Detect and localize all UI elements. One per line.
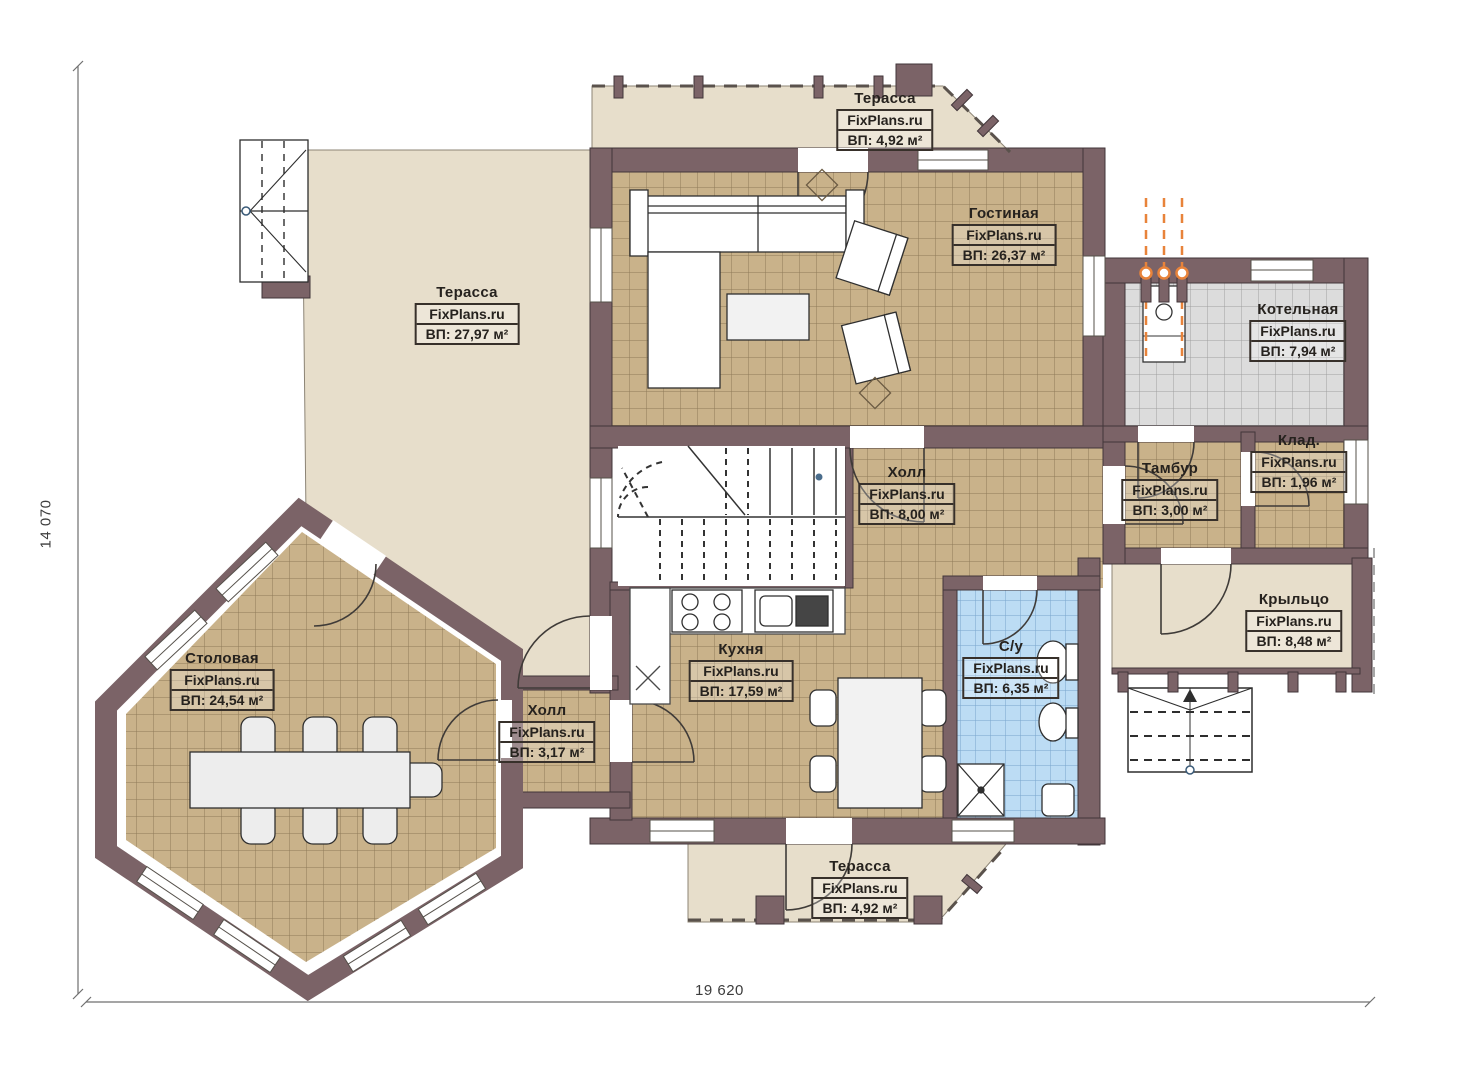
room-name: Холл [498, 702, 595, 719]
room-label-kitchen: Кухня FixPlans.ru ВП: 17,59 м² [689, 641, 794, 702]
watermark: FixPlans.ru [500, 723, 593, 743]
floor-plan-svg [0, 0, 1473, 1080]
room-label-hall-small: Холл FixPlans.ru ВП: 3,17 м² [498, 702, 595, 763]
room-area: ВП: 1,96 м² [1252, 473, 1345, 491]
room-area: ВП: 17,59 м² [691, 682, 792, 700]
room-name: С/у [962, 638, 1059, 655]
room-label-hall-main: Холл FixPlans.ru ВП: 8,00 м² [858, 464, 955, 525]
room-label-vestibule: Тамбур FixPlans.ru ВП: 3,00 м² [1121, 460, 1218, 521]
watermark: FixPlans.ru [417, 305, 518, 325]
room-label-storage: Клад. FixPlans.ru ВП: 1,96 м² [1250, 432, 1347, 493]
external-stair [240, 140, 308, 282]
watermark: FixPlans.ru [1123, 481, 1216, 501]
room-area: ВП: 4,92 м² [813, 899, 906, 917]
watermark: FixPlans.ru [172, 671, 273, 691]
room-area: ВП: 26,37 м² [954, 246, 1055, 264]
room-label-terrace-top: Терасса FixPlans.ru ВП: 4,92 м² [836, 90, 933, 151]
room-label-living: Гостиная FixPlans.ru ВП: 26,37 м² [952, 205, 1057, 266]
room-area: ВП: 3,00 м² [1123, 501, 1216, 519]
watermark: FixPlans.ru [860, 485, 953, 505]
room-name: Тамбур [1121, 460, 1218, 477]
room-info-box: FixPlans.ru ВП: 4,92 м² [811, 877, 908, 919]
room-label-terrace-bottom: Терасса FixPlans.ru ВП: 4,92 м² [811, 858, 908, 919]
room-info-box: FixPlans.ru ВП: 8,00 м² [858, 483, 955, 525]
room-area: ВП: 27,97 м² [417, 325, 518, 343]
room-info-box: FixPlans.ru ВП: 26,37 м² [952, 224, 1057, 266]
room-label-porch: Крыльцо FixPlans.ru ВП: 8,48 м² [1245, 591, 1342, 652]
room-info-box: FixPlans.ru ВП: 8,48 м² [1245, 610, 1342, 652]
porch-steps [1128, 688, 1252, 774]
watermark: FixPlans.ru [691, 662, 792, 682]
staircase [618, 446, 845, 586]
room-area: ВП: 8,48 м² [1247, 632, 1340, 650]
room-name: Гостиная [952, 205, 1057, 222]
watermark: FixPlans.ru [838, 111, 931, 131]
room-name: Столовая [170, 650, 275, 667]
room-area: ВП: 24,54 м² [172, 691, 273, 709]
boiler-unit [1141, 198, 1188, 362]
room-area: ВП: 6,35 м² [964, 679, 1057, 697]
room-area: ВП: 8,00 м² [860, 505, 953, 523]
room-area: ВП: 3,17 м² [500, 743, 593, 761]
room-name: Терасса [836, 90, 933, 107]
room-name: Холл [858, 464, 955, 481]
room-info-box: FixPlans.ru ВП: 3,00 м² [1121, 479, 1218, 521]
dimension-width: 19 620 [695, 982, 744, 999]
room-info-box: FixPlans.ru ВП: 3,17 м² [498, 721, 595, 763]
room-name: Крыльцо [1245, 591, 1342, 608]
room-name: Клад. [1250, 432, 1347, 449]
watermark: FixPlans.ru [813, 879, 906, 899]
watermark: FixPlans.ru [1251, 322, 1344, 342]
room-info-box: FixPlans.ru ВП: 6,35 м² [962, 657, 1059, 699]
room-name: Котельная [1249, 301, 1346, 318]
room-area: ВП: 7,94 м² [1251, 342, 1344, 360]
room-info-box: FixPlans.ru ВП: 1,96 м² [1250, 451, 1347, 493]
room-name: Кухня [689, 641, 794, 658]
room-label-terrace-left: Терасса FixPlans.ru ВП: 27,97 м² [415, 284, 520, 345]
room-info-box: FixPlans.ru ВП: 17,59 м² [689, 660, 794, 702]
room-name: Терасса [811, 858, 908, 875]
watermark: FixPlans.ru [1247, 612, 1340, 632]
room-info-box: FixPlans.ru ВП: 27,97 м² [415, 303, 520, 345]
room-info-box: FixPlans.ru ВП: 4,92 м² [836, 109, 933, 151]
dimension-height: 14 070 [38, 500, 55, 549]
watermark: FixPlans.ru [964, 659, 1057, 679]
room-info-box: FixPlans.ru ВП: 7,94 м² [1249, 320, 1346, 362]
room-label-dining: Столовая FixPlans.ru ВП: 24,54 м² [170, 650, 275, 711]
room-info-box: FixPlans.ru ВП: 24,54 м² [170, 669, 275, 711]
watermark: FixPlans.ru [954, 226, 1055, 246]
room-label-bathroom: С/у FixPlans.ru ВП: 6,35 м² [962, 638, 1059, 699]
room-area: ВП: 4,92 м² [838, 131, 931, 149]
room-name: Терасса [415, 284, 520, 301]
room-label-boiler: Котельная FixPlans.ru ВП: 7,94 м² [1249, 301, 1346, 362]
watermark: FixPlans.ru [1252, 453, 1345, 473]
